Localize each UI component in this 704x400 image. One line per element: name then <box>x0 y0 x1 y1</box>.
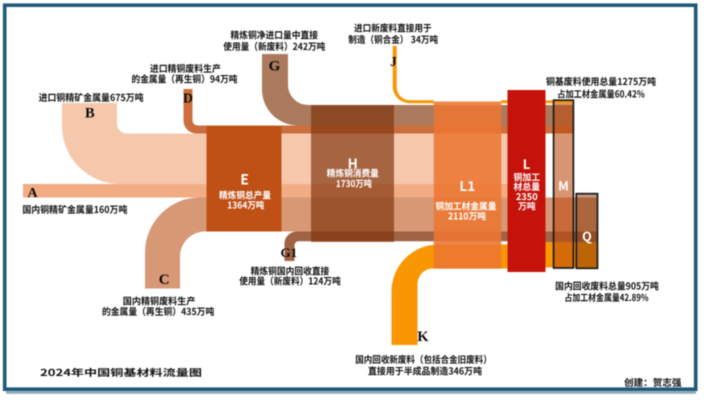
svg-text:C: C <box>159 272 170 288</box>
svg-text:的金属量（再生铜）435万吨: 的金属量（再生铜）435万吨 <box>102 304 215 318</box>
svg-text:D: D <box>183 91 193 106</box>
svg-text:2024年中国铜基材料流量图: 2024年中国铜基材料流量图 <box>40 365 202 379</box>
svg-text:直接用于半成品制造346万吨: 直接用于半成品制造346万吨 <box>368 364 482 378</box>
svg-text:占加工材金属量42.89%: 占加工材金属量42.89% <box>565 290 649 304</box>
svg-text:L1: L1 <box>459 175 475 195</box>
svg-text:创建：贺志强: 创建：贺志强 <box>624 375 682 389</box>
svg-text:国内铜精矿金属量160万吨: 国内铜精矿金属量160万吨 <box>22 202 127 216</box>
svg-text:G1: G1 <box>280 245 297 260</box>
svg-text:使用量（新废料）242万吨: 使用量（新废料）242万吨 <box>223 39 325 53</box>
svg-text:M: M <box>558 175 569 194</box>
svg-text:1730万吨: 1730万吨 <box>336 176 373 190</box>
svg-text:J: J <box>390 54 397 69</box>
svg-text:占加工材金属量60.42%: 占加工材金属量60.42% <box>557 87 645 101</box>
svg-text:使用量（新废料）124万吨: 使用量（新废料）124万吨 <box>239 274 341 288</box>
svg-text:的金属量（再生铜）94万吨: 的金属量（再生铜）94万吨 <box>132 72 238 86</box>
svg-text:Q: Q <box>582 226 592 245</box>
svg-text:B: B <box>85 106 95 122</box>
svg-text:A: A <box>27 186 38 201</box>
svg-text:万吨: 万吨 <box>518 198 536 212</box>
svg-text:E: E <box>240 169 249 189</box>
svg-text:2110万吨: 2110万吨 <box>448 209 487 223</box>
svg-text:制造（铜合金） 34万吨: 制造（铜合金） 34万吨 <box>348 32 438 46</box>
svg-text:G: G <box>269 59 281 75</box>
svg-text:1364万吨: 1364万吨 <box>227 197 265 211</box>
svg-text:K: K <box>417 329 429 345</box>
svg-text:进口铜精矿金属量675万吨: 进口铜精矿金属量675万吨 <box>39 90 144 104</box>
